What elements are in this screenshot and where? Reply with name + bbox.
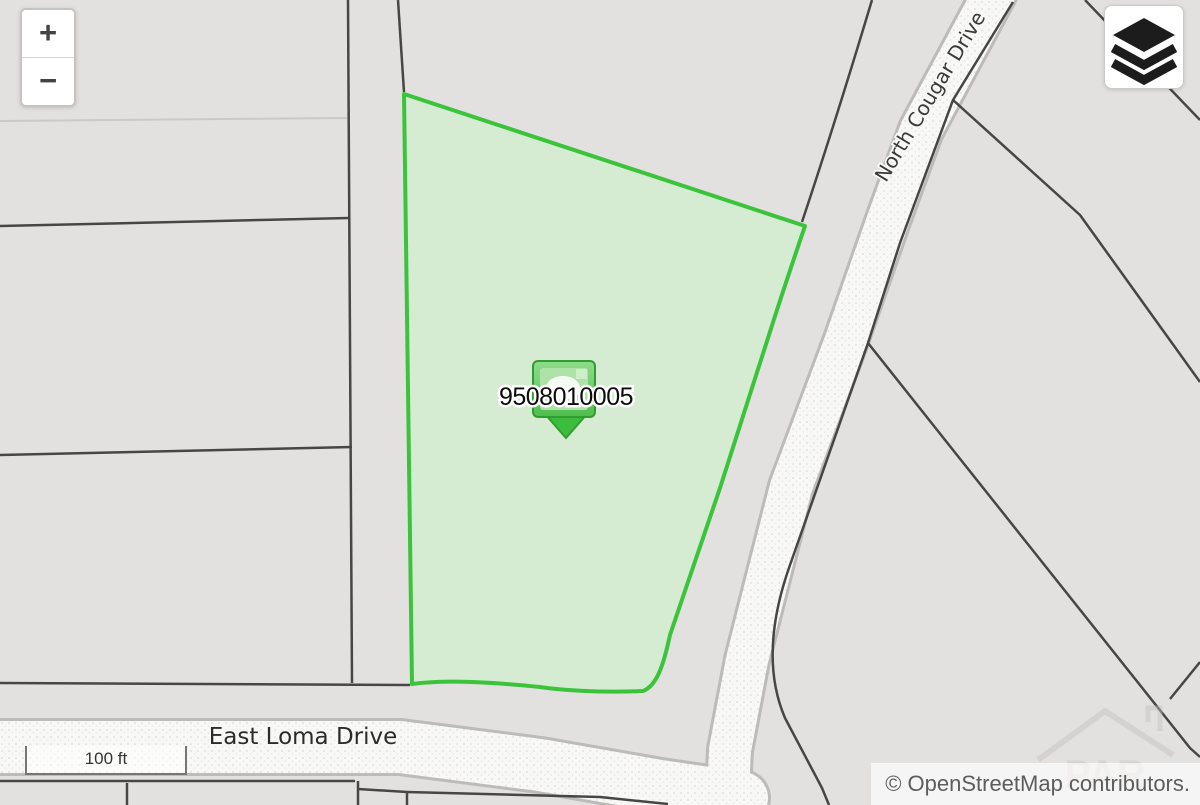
- parcel-id-label: 9508010005: [499, 383, 633, 411]
- zoom-in-button[interactable]: +: [22, 10, 74, 58]
- layers-icon: [1105, 6, 1183, 88]
- map-layers: PAR 9508010005 East Loma Drive North Cou…: [0, 0, 1200, 805]
- layers-button[interactable]: [1104, 5, 1184, 89]
- attribution: © OpenStreetMap contributors.: [871, 763, 1200, 805]
- street-label-east-loma: East Loma Drive: [209, 724, 398, 750]
- map-canvas[interactable]: PAR 9508010005 East Loma Drive North Cou…: [0, 0, 1200, 805]
- scale-label: 100 ft: [85, 749, 128, 768]
- scale-bar: 100 ft: [25, 746, 187, 775]
- zoom-control: + −: [20, 8, 76, 107]
- zoom-out-button[interactable]: −: [22, 58, 74, 105]
